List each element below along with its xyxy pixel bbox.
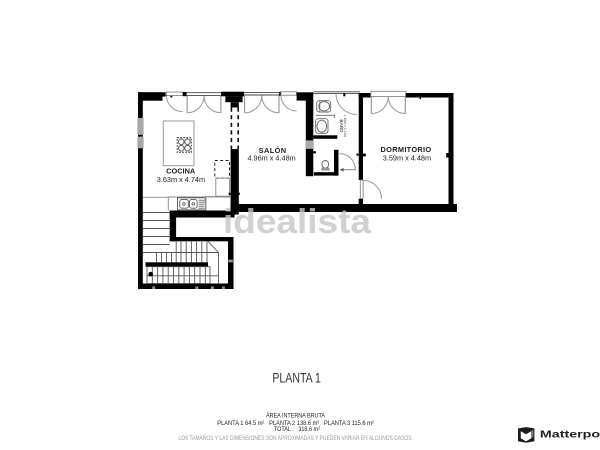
svg-text:TOTAL : 318.6 m²: TOTAL : 318.6 m² xyxy=(274,426,320,433)
svg-text:1.46m x 2.12m: 1.46m x 2.12m xyxy=(343,115,347,138)
svg-text:idealista: idealista xyxy=(223,203,372,241)
svg-text:3.59m x 4.48m: 3.59m x 4.48m xyxy=(383,154,431,163)
svg-text:LOS TAMAÑOS Y LAS DIMENSIONES: LOS TAMAÑOS Y LAS DIMENSIONES SON APROXI… xyxy=(178,433,413,442)
svg-text:4.96m x 4.48m: 4.96m x 4.48m xyxy=(247,153,295,162)
svg-text:Matterport: Matterport xyxy=(540,429,600,441)
svg-text:3.63m x 4.74m: 3.63m x 4.74m xyxy=(157,175,205,184)
svg-text:ÁREA INTERNA BRUTA: ÁREA INTERNA BRUTA xyxy=(266,411,326,420)
svg-text:PLANTA 1: PLANTA 1 xyxy=(272,370,321,386)
